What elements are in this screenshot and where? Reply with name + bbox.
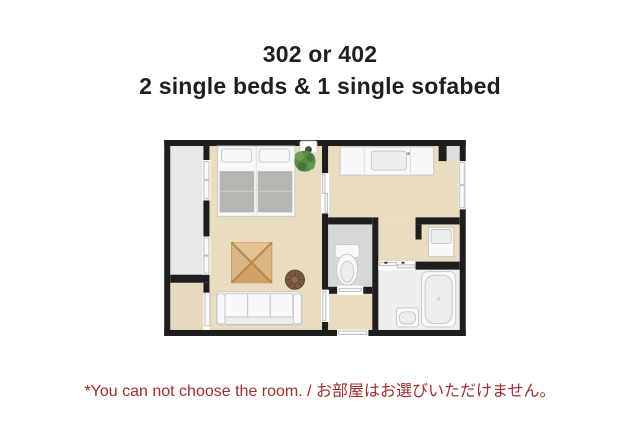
washbasin-cabinet: [429, 227, 454, 256]
wall-outer-bottom-right: [368, 330, 465, 336]
door-living-corridor: [321, 290, 329, 322]
window-pane: [204, 238, 209, 255]
wall-niche-top: [416, 217, 460, 224]
door-track-tick: [401, 262, 404, 264]
floorplan-svg: [164, 140, 466, 336]
wall-niche-stub: [416, 224, 422, 239]
plant-leaf: [297, 162, 306, 171]
window-pane: [204, 256, 209, 273]
wall-balcony-2: [203, 200, 209, 236]
wall-outer-left: [164, 140, 170, 336]
toilet-seat: [341, 261, 354, 282]
bed-pillow-1: [222, 149, 252, 162]
bed-pillow-2: [259, 149, 289, 162]
door-leaf: [322, 174, 325, 193]
right-wall-window: [459, 161, 466, 209]
balcony-floor: [170, 146, 203, 275]
bathtub: [422, 272, 456, 327]
door-living-kitchen: [321, 173, 329, 213]
bathtub-drain: [437, 297, 440, 300]
bed-blanket-2: [258, 171, 293, 212]
sofa-cushion: [248, 294, 271, 317]
bathroom-sink: [396, 308, 418, 327]
door-leaf: [325, 193, 328, 212]
floorplan-image: [164, 140, 466, 336]
balcony-window-2: [202, 236, 210, 274]
toilet: [335, 245, 359, 286]
closet-floor: [170, 283, 203, 330]
page-title: 302 or 402 2 single beds & 1 single sofa…: [0, 38, 640, 102]
window-pane: [460, 186, 465, 208]
window-pane: [460, 163, 465, 185]
entry-corridor-floor: [328, 294, 372, 330]
closet-door: [205, 293, 210, 326]
door-leaf: [339, 331, 367, 335]
sofa-cushion: [225, 294, 248, 317]
wall-corner-block: [439, 146, 447, 161]
balcony-window-1: [202, 160, 210, 200]
door-toilet: [337, 286, 363, 295]
plant-leaf: [306, 154, 314, 162]
wall-outer-bottom-left: [164, 330, 337, 336]
wall-center-3: [322, 322, 328, 330]
window-pane: [204, 181, 209, 199]
bed-blanket-1: [220, 171, 255, 212]
room-numbers: 302 or 402: [0, 38, 640, 70]
sofa-bed: [216, 292, 301, 325]
kitchen-faucet: [407, 152, 410, 155]
wall-balcony-bottom: [170, 275, 209, 283]
pouf: [285, 270, 304, 289]
room-note: *You can not choose the room. / お部屋はお選びい…: [0, 377, 640, 401]
kitchen-sink: [371, 151, 406, 170]
wall-toilet-bottom-left: [328, 287, 338, 294]
door-leaf: [339, 288, 361, 291]
door-track-tick: [384, 262, 387, 264]
sofa-armrest-left: [217, 294, 225, 324]
bed-configuration: 2 single beds & 1 single sofabed: [0, 70, 640, 102]
wall-center-1: [322, 146, 328, 173]
door-bathroom: [378, 261, 415, 270]
sink-basin: [399, 312, 415, 324]
plant: [294, 151, 315, 172]
plant-leaf: [295, 152, 304, 161]
sofa-cushion: [270, 294, 293, 317]
door-leaf: [323, 291, 326, 320]
wall-closet-stub: [203, 283, 209, 293]
cabinet-basin: [431, 229, 451, 243]
door-leaf: [397, 265, 414, 268]
wall-center-2: [322, 213, 328, 289]
kitchen-counter: [340, 147, 433, 175]
low-table: [232, 243, 272, 283]
entrance-door: [337, 329, 368, 336]
sofa-armrest-right: [293, 294, 301, 324]
plant-leaf: [307, 162, 315, 170]
single-beds: [218, 146, 295, 216]
wall-bathroom-top: [416, 262, 460, 270]
wall-toilet-top: [328, 217, 372, 224]
pouf-center: [292, 277, 298, 283]
corner-notch: [447, 146, 459, 161]
door-leaf: [379, 263, 396, 266]
window-pane: [204, 162, 209, 180]
wall-balcony-1: [203, 146, 209, 160]
wall-corridor-right: [372, 217, 378, 330]
sofa-backrest: [225, 317, 294, 325]
room-note-text: *You can not choose the room. / お部屋はお選びい…: [84, 383, 555, 400]
wall-toilet-bottom-right: [362, 287, 372, 294]
